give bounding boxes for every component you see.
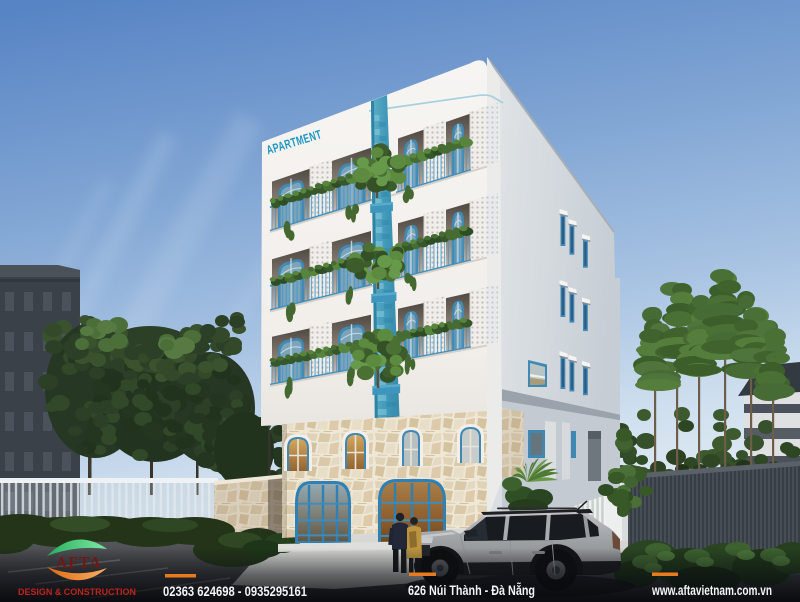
svg-text:www.aftavietnam.com.vn: www.aftavietnam.com.vn: [651, 583, 772, 598]
svg-text:02363 624698 - 0935295161: 02363 624698 - 0935295161: [163, 584, 307, 599]
svg-text:AFTA: AFTA: [56, 553, 102, 572]
svg-text:DESIGN & CONSTRUCTION: DESIGN & CONSTRUCTION: [18, 587, 136, 598]
svg-text:626 Núi Thành - Đà Nẵng: 626 Núi Thành - Đà Nẵng: [408, 583, 535, 598]
